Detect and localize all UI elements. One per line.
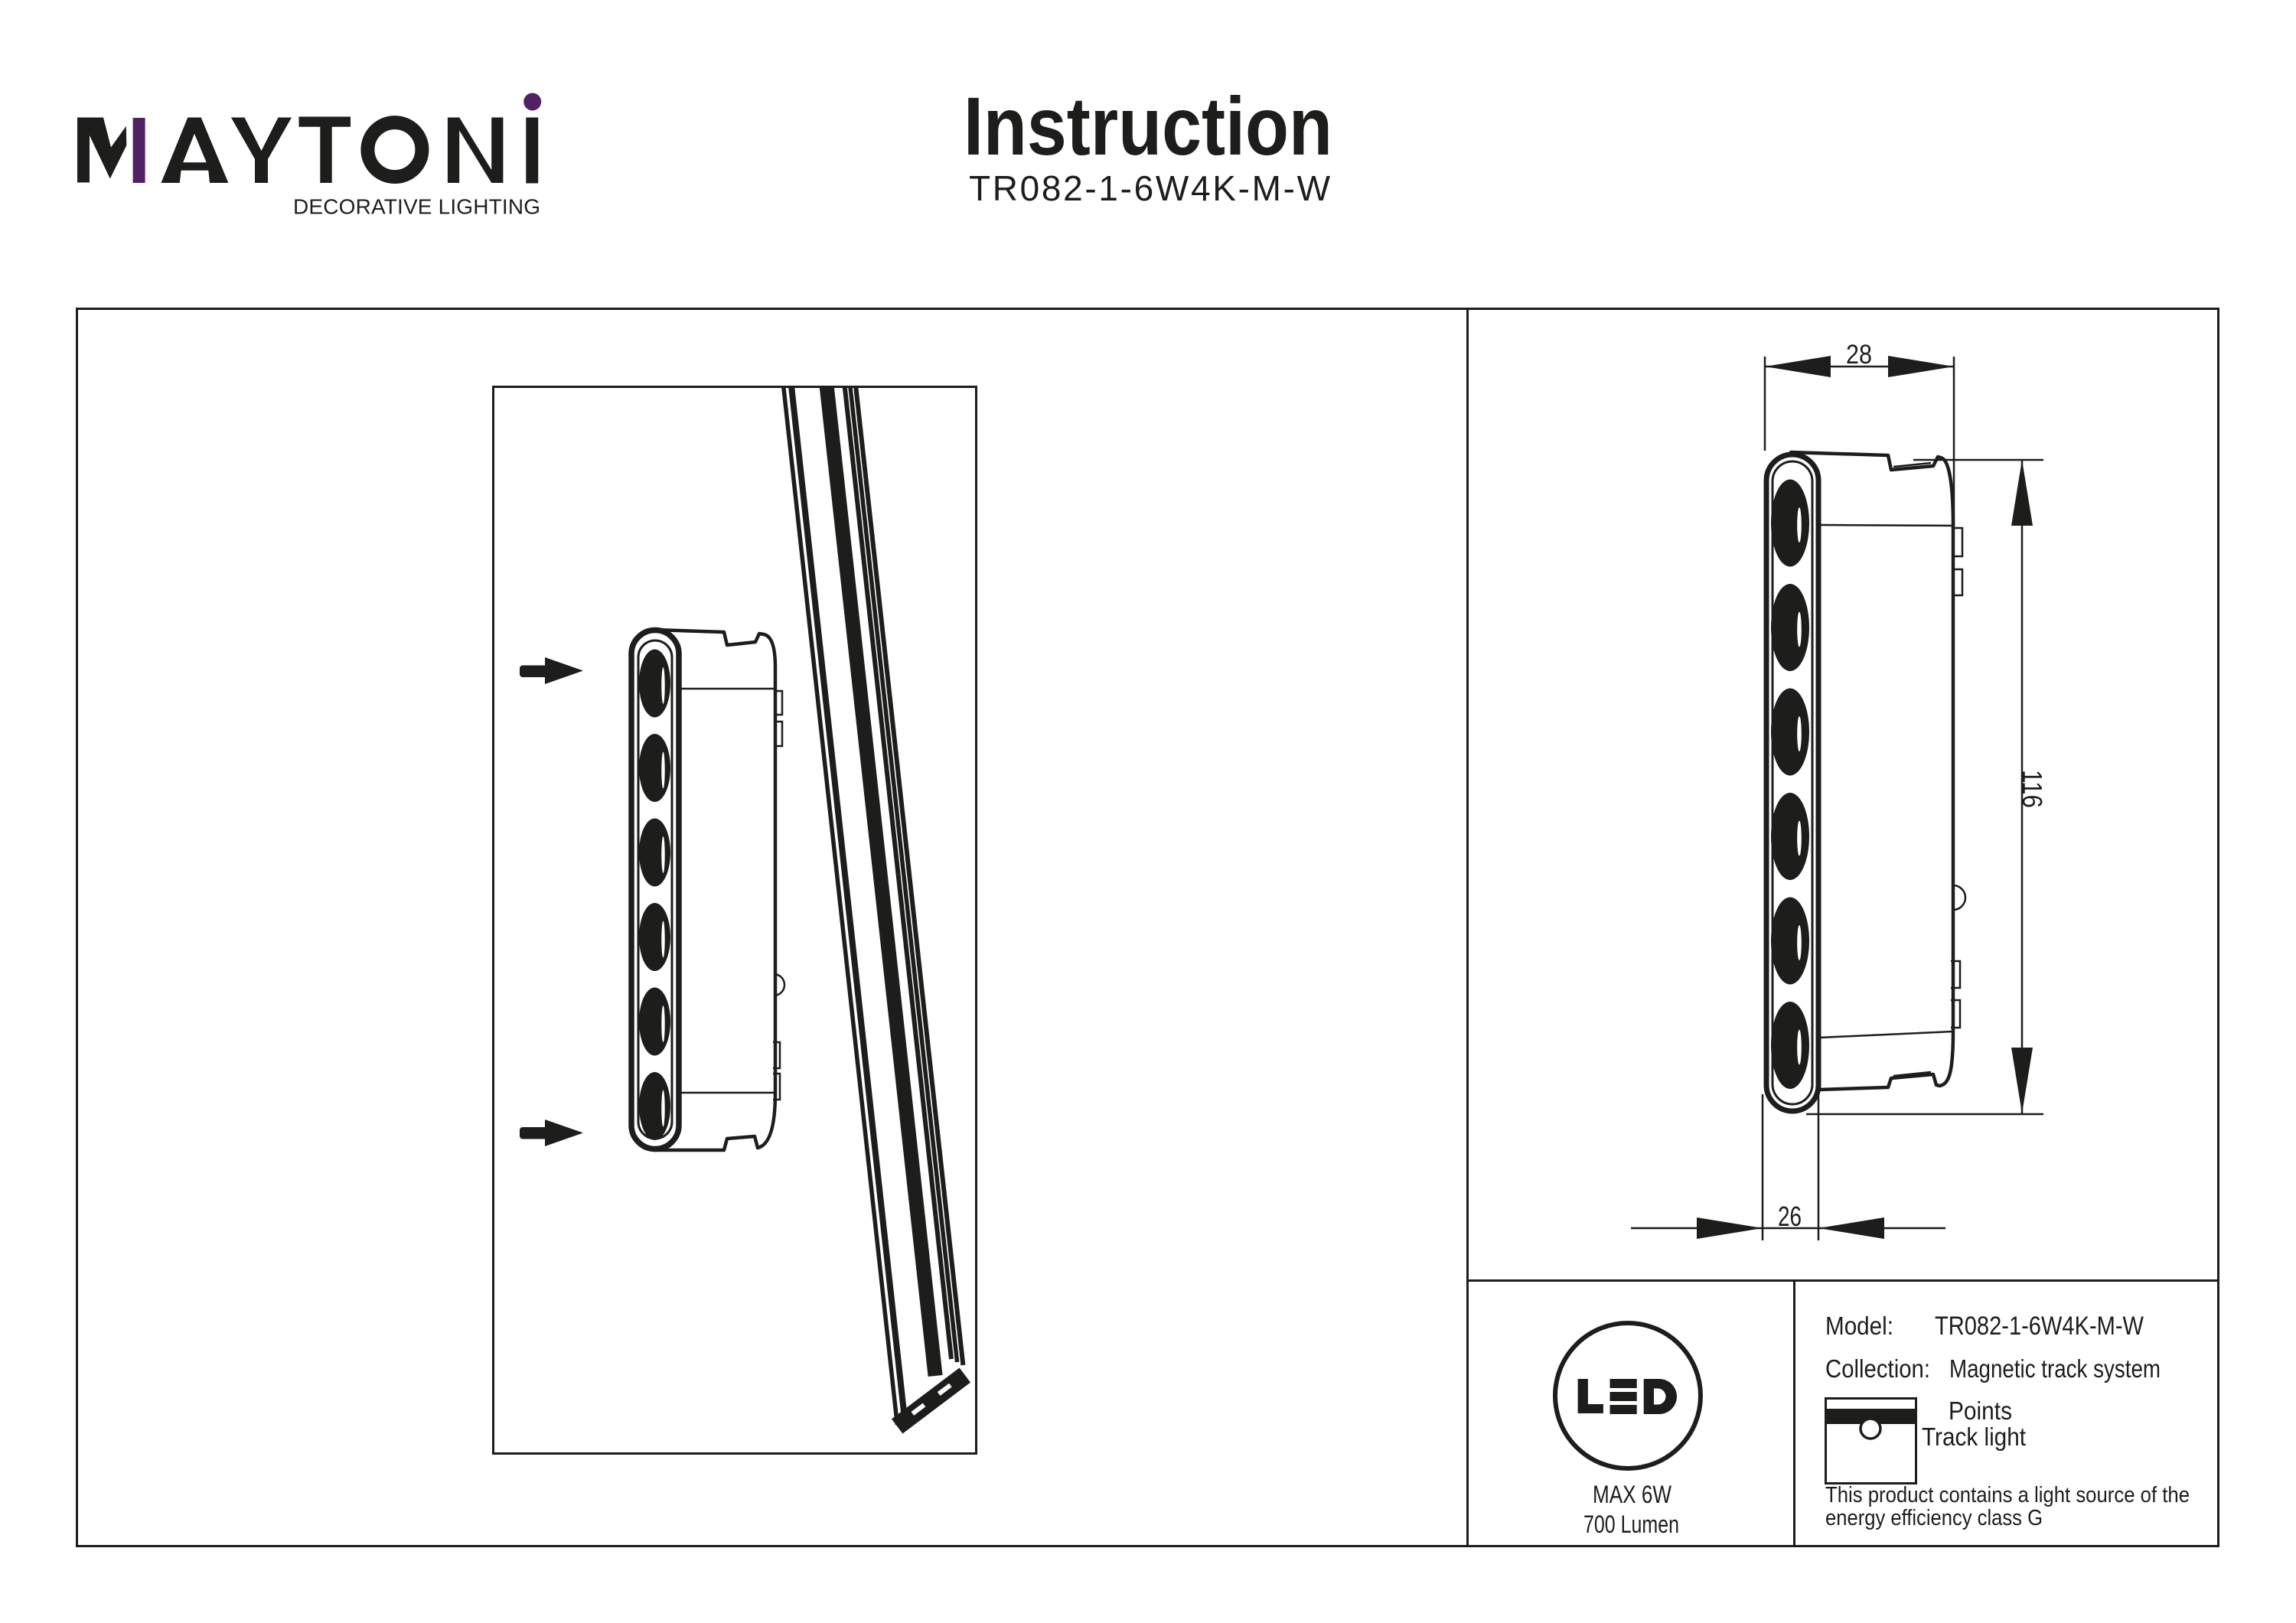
svg-text:Instruction: Instruction [964, 80, 1332, 172]
svg-text:Model:: Model: [1825, 1312, 1893, 1340]
svg-text:Points: Points [1949, 1396, 2012, 1425]
svg-text:26: 26 [1778, 1201, 1802, 1232]
svg-text:28: 28 [1846, 340, 1872, 370]
svg-text:TR082-1-6W4K-M-W: TR082-1-6W4K-M-W [1935, 1312, 2144, 1341]
svg-text:MAX 6W: MAX 6W [1593, 1481, 1672, 1508]
svg-text:Collection:: Collection: [1825, 1354, 1930, 1383]
svg-text:700 Lumen: 700 Lumen [1583, 1511, 1679, 1538]
svg-text:Track light: Track light [1922, 1423, 2026, 1451]
svg-text:This product contains a light: This product contains a light source of … [1825, 1483, 2190, 1507]
svg-text:energy efficiency class G: energy efficiency class G [1825, 1506, 2043, 1530]
svg-text:TR082-1-6W4K-M-W: TR082-1-6W4K-M-W [969, 168, 1331, 208]
svg-text:DECORATIVE LIGHTING: DECORATIVE LIGHTING [293, 195, 540, 219]
svg-text:116: 116 [2017, 770, 2048, 808]
svg-text:Magnetic track system: Magnetic track system [1949, 1354, 2161, 1383]
